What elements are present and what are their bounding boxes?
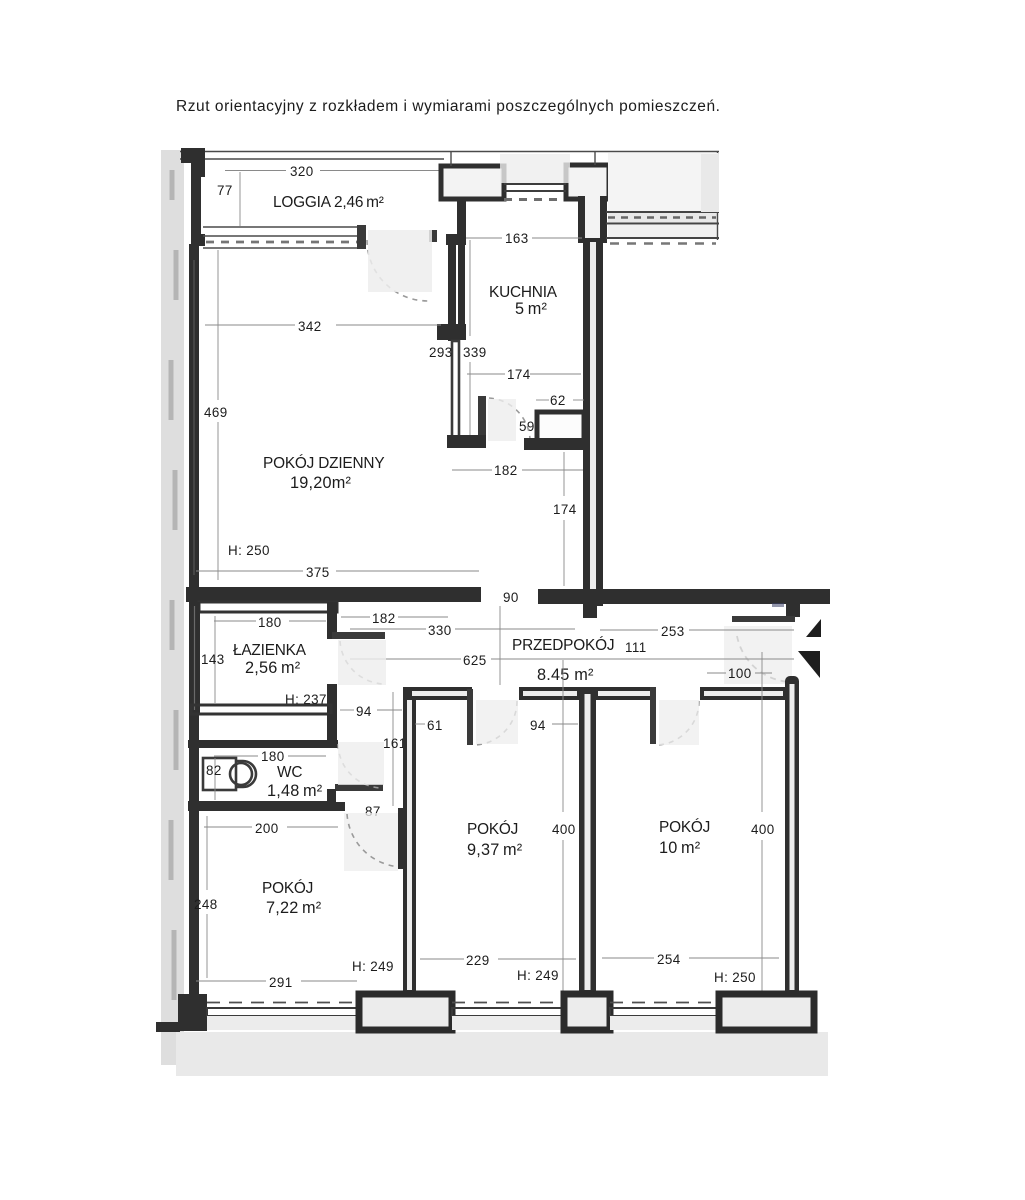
svg-text:LOGGIA 2,46 m²: LOGGIA 2,46 m² xyxy=(273,194,384,211)
svg-text:253: 253 xyxy=(661,624,685,639)
svg-text:291: 291 xyxy=(269,975,293,990)
svg-text:400: 400 xyxy=(552,822,576,837)
svg-text:339: 339 xyxy=(463,345,487,360)
svg-text:229: 229 xyxy=(466,953,490,968)
svg-text:H: 249: H: 249 xyxy=(352,959,394,974)
svg-text:174: 174 xyxy=(553,502,577,517)
svg-text:H: 250: H: 250 xyxy=(714,970,756,985)
svg-text:5 m²: 5 m² xyxy=(515,300,547,318)
svg-text:330: 330 xyxy=(428,623,452,638)
svg-text:WC: WC xyxy=(277,764,302,781)
svg-text:POKÓJ: POKÓJ xyxy=(659,819,710,836)
svg-text:200: 200 xyxy=(255,821,279,836)
svg-text:375: 375 xyxy=(306,565,330,580)
svg-text:POKÓJ DZIENNY: POKÓJ DZIENNY xyxy=(263,455,384,472)
svg-text:KUCHNIA: KUCHNIA xyxy=(489,284,558,301)
svg-text:342: 342 xyxy=(298,319,322,334)
svg-text:77: 77 xyxy=(217,183,233,198)
svg-text:62: 62 xyxy=(550,393,566,408)
svg-text:POKÓJ: POKÓJ xyxy=(467,821,518,838)
svg-text:82: 82 xyxy=(206,763,222,778)
svg-text:111: 111 xyxy=(625,640,647,655)
svg-text:7,22 m²: 7,22 m² xyxy=(266,899,322,917)
svg-text:94: 94 xyxy=(530,718,546,733)
svg-text:ŁAZIENKA: ŁAZIENKA xyxy=(233,642,307,659)
svg-text:1,48 m²: 1,48 m² xyxy=(267,782,323,800)
svg-text:320: 320 xyxy=(290,164,314,179)
svg-text:Rzut orientacyjny z rozkładem: Rzut orientacyjny z rozkładem i wymiaram… xyxy=(176,98,720,115)
svg-text:10 m²: 10 m² xyxy=(659,839,701,857)
svg-text:2,56 m²: 2,56 m² xyxy=(245,659,301,677)
svg-text:POKÓJ: POKÓJ xyxy=(262,880,313,897)
svg-text:8.45 m²: 8.45 m² xyxy=(537,666,594,684)
svg-text:H: 250: H: 250 xyxy=(228,543,270,558)
svg-text:254: 254 xyxy=(657,952,681,967)
svg-text:182: 182 xyxy=(494,463,518,478)
svg-text:94: 94 xyxy=(356,704,372,719)
svg-text:163: 163 xyxy=(505,231,529,246)
svg-text:9,37 m²: 9,37 m² xyxy=(467,841,523,859)
svg-text:400: 400 xyxy=(751,822,775,837)
svg-text:469: 469 xyxy=(204,405,228,420)
svg-text:248: 248 xyxy=(194,897,218,912)
svg-text:625: 625 xyxy=(463,653,487,668)
svg-text:182: 182 xyxy=(372,611,396,626)
svg-text:180: 180 xyxy=(258,615,282,630)
svg-text:100: 100 xyxy=(728,666,752,681)
svg-text:19,20m²: 19,20m² xyxy=(290,474,352,492)
svg-text:180: 180 xyxy=(261,749,285,764)
svg-text:293: 293 xyxy=(429,345,453,360)
svg-text:H: 249: H: 249 xyxy=(517,968,559,983)
svg-text:PRZEDPOKÓJ: PRZEDPOKÓJ xyxy=(512,637,614,654)
svg-text:61: 61 xyxy=(427,718,443,733)
svg-text:143: 143 xyxy=(201,652,225,667)
svg-text:174: 174 xyxy=(507,367,531,382)
svg-text:90: 90 xyxy=(503,590,519,605)
